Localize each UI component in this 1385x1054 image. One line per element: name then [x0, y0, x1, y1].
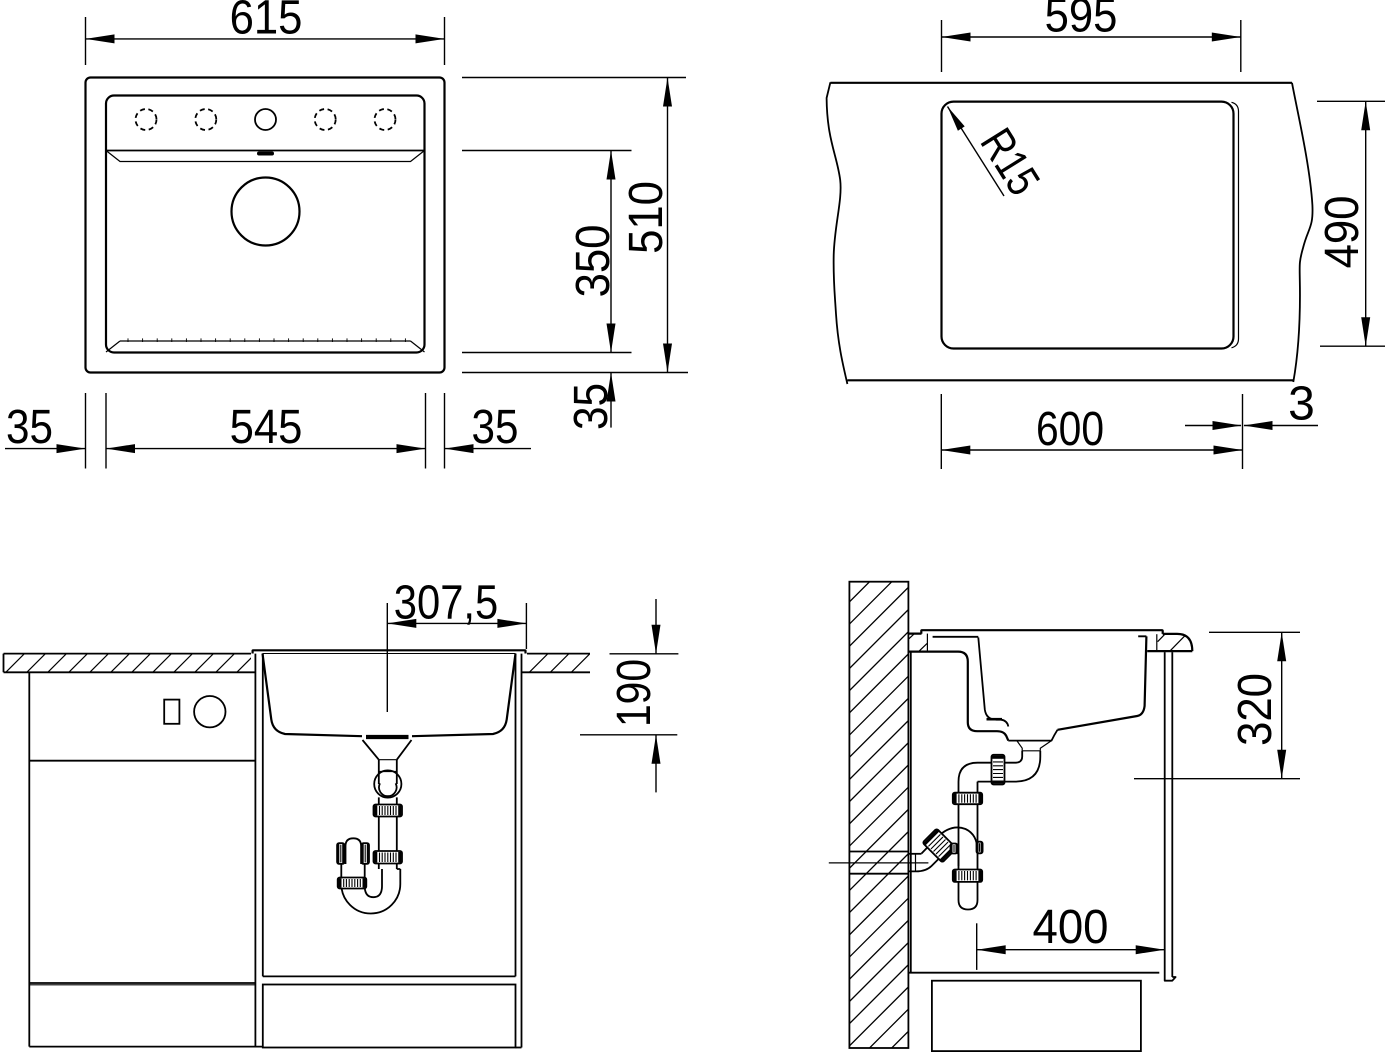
- svg-text:35: 35: [563, 383, 617, 430]
- svg-text:35: 35: [6, 399, 53, 453]
- svg-text:615: 615: [230, 0, 303, 44]
- svg-text:545: 545: [230, 399, 303, 453]
- svg-text:3: 3: [1288, 378, 1315, 431]
- svg-text:600: 600: [1036, 403, 1104, 456]
- svg-text:400: 400: [1032, 900, 1108, 953]
- svg-text:350: 350: [565, 225, 619, 298]
- svg-text:320: 320: [1227, 673, 1281, 746]
- svg-text:190: 190: [608, 659, 661, 727]
- svg-text:307,5: 307,5: [394, 575, 498, 629]
- svg-text:510: 510: [618, 181, 672, 254]
- svg-text:35: 35: [472, 399, 519, 453]
- svg-text:595: 595: [1045, 0, 1118, 42]
- svg-text:490: 490: [1314, 196, 1368, 269]
